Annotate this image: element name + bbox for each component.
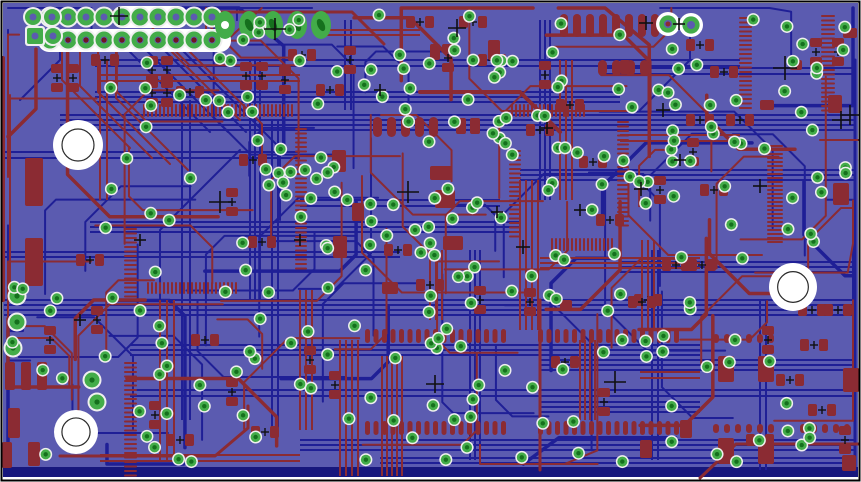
via-drill [621,158,625,162]
ic-pad [519,104,521,117]
ic-pad [124,443,137,445]
via-drill [406,119,410,123]
via [684,155,697,168]
ic-pad [599,238,601,251]
via-drill [786,429,790,433]
via-drill [757,438,761,442]
ic-pad [415,117,424,137]
via [586,203,599,216]
ic-pad [124,376,137,378]
ic-pad [295,259,307,261]
ic-pad [746,334,752,343]
via-drill [240,241,244,245]
ic-pad [124,371,137,373]
via [633,175,646,188]
via [672,62,685,75]
via-drill [426,225,430,229]
ic-pad [124,389,137,391]
via-drill [472,265,476,269]
ic-pad [295,232,307,234]
ic-pad [657,421,662,435]
via [39,448,52,461]
ic-pad [509,231,521,233]
via [6,336,19,349]
via-drill [669,147,673,151]
via [315,151,328,164]
ic-pad [124,398,137,400]
through-hole-pad [83,371,102,390]
ic-pad [509,209,521,211]
smd-pad [5,362,15,390]
smd-pad [842,455,856,471]
via-drill [620,459,624,463]
via [172,453,185,466]
smd-pad [556,99,565,111]
smd-pad [686,114,695,126]
via-drill [250,110,254,114]
via-drill [241,413,245,417]
via-drill [188,176,192,180]
ic-pad [821,29,835,31]
ic-pad [295,227,307,229]
ic-pad [713,424,719,433]
ic-pad [583,238,585,251]
via-drill [43,452,47,456]
via [427,399,440,412]
ic-pad [124,439,137,441]
ic-pad [295,137,307,139]
ic-pad [632,421,637,435]
via-drill [368,243,372,247]
ic-pad [399,421,404,435]
via-drill [264,167,268,171]
ic-pad [155,282,157,294]
via [404,82,417,95]
pad-hole [191,14,198,21]
smd-pad [686,39,695,51]
via [612,83,625,96]
ic-pad [767,209,783,211]
ic-pad [484,421,489,435]
smd-pad [344,46,356,55]
ic-pad [739,85,752,87]
ic-pad [124,416,137,418]
smd-pad [185,434,194,446]
ic-pad [767,197,783,199]
ic-pad [124,457,137,459]
ic-pad [283,104,285,117]
via-drill [369,396,373,400]
via [571,146,584,159]
via-drill [109,187,113,191]
smd-pad [598,388,610,397]
via [432,332,445,345]
ic-pad [275,104,277,117]
via [373,9,386,22]
via [321,242,334,255]
ic-pad [235,282,237,294]
ic-pad [821,33,835,35]
ic-pad [199,104,201,117]
via [409,223,422,236]
ic-pad [598,329,603,343]
ic-pad [640,421,645,435]
ic-pad [598,421,603,435]
via-drill [287,27,291,31]
via-drill [661,349,665,353]
smd-pad [226,188,238,197]
via [598,150,611,163]
ic-pad [211,104,213,117]
via-drill [543,114,547,118]
via [358,78,371,91]
ic-pad [187,104,189,117]
smd-pad [307,49,316,61]
via-drill [145,61,149,65]
ic-pad [617,139,629,141]
smd-pad [710,66,719,78]
smd-pad [406,16,415,28]
via [780,20,793,33]
via-drill [510,153,514,157]
smd-pad [688,259,697,271]
via [555,17,568,30]
ic-pad [821,56,835,58]
smd-pad [403,244,412,256]
smd-pad [647,296,656,308]
via-drill [575,150,579,154]
via [781,424,794,437]
smd-pad [248,236,257,248]
via-drill [618,32,622,36]
via-drill [727,360,731,364]
ic-pad [573,14,581,37]
ic-pad [291,104,293,117]
ic-pad [295,178,307,180]
ic-pad [617,126,629,128]
ic-pad [509,177,521,179]
via-drill [410,436,414,440]
ic-pad [821,47,835,49]
ic-pad [295,236,307,238]
ic-pad [509,236,521,238]
via-drill [309,386,313,390]
ic-pad [821,24,835,26]
ic-pad [167,282,169,294]
ic-pad [295,205,307,207]
smd-pad [76,254,85,266]
ic-pad [735,424,741,433]
via-drill [530,385,534,389]
ic-pad [295,268,307,270]
via-drill [284,193,288,197]
smd-pad [329,390,341,399]
via [423,305,436,318]
via-drill [189,459,193,463]
ic-pad [746,424,752,433]
via [690,58,703,71]
via [683,296,696,309]
via [730,455,743,468]
smd-pad [226,378,238,387]
via [556,363,569,376]
pad-hole [14,319,19,324]
ic-pad [575,238,577,251]
via-drill [628,175,632,179]
ic-pad [211,282,213,294]
via [414,246,427,259]
ic-pad [416,329,421,343]
ic-pad [175,282,177,294]
smd-pad [524,288,536,297]
via-drill [165,364,169,368]
smd-pad [478,16,487,28]
via-drill [510,59,514,63]
via-drill [467,14,471,18]
soldered-pin [137,37,142,42]
via [293,54,306,67]
via-drill [165,411,169,415]
ic-pad [767,201,783,203]
via [448,115,461,128]
via [249,431,262,444]
via [617,154,630,167]
via [311,97,324,110]
smd-pad [425,16,434,28]
smd-pad [25,238,43,286]
via-drill [352,324,356,328]
ic-pad [295,187,307,189]
ic-pad [124,394,137,396]
ic-pad [767,229,783,231]
smd-pad [149,401,161,410]
via-drill [601,350,605,354]
via-drill [495,58,499,62]
ic-pad [509,191,521,193]
via [567,415,580,428]
smd-pad [304,365,316,374]
smd-pad [640,440,652,458]
ic-pad [649,421,654,435]
via-drill [452,120,456,124]
via-drill [705,364,709,368]
via-drill [618,292,622,296]
via-drill [109,86,113,90]
via-drill [253,356,257,360]
via-drill [316,102,320,106]
via [439,453,452,466]
via-drill [345,198,349,202]
smd-pad [279,85,291,94]
via-drill [267,183,271,187]
via-drill [590,208,594,212]
via [462,93,475,106]
via-drill [722,184,726,188]
via [490,54,503,67]
via [465,296,478,309]
via-drill [401,66,405,70]
via [538,109,551,122]
through-hole-pad [42,7,62,27]
ic-pad [564,329,569,343]
ic-pad [739,71,752,73]
smd-pad [2,442,12,468]
via-drill [459,344,463,348]
ic-pad [767,185,783,187]
via-drill [281,180,285,184]
ic-pad [767,161,783,163]
pad-hole [49,14,56,21]
via [380,229,393,242]
via-drill [620,338,624,342]
smd-pad [435,279,444,291]
ic-pad [124,466,137,468]
via [397,62,410,75]
smd-pad [654,176,666,185]
ic-pad [493,329,498,343]
via-drill [612,252,616,256]
via-drill [688,159,692,163]
via-drill [255,138,259,142]
ic-pad [571,238,573,251]
via-drill [767,359,771,363]
via [597,346,610,359]
ic-pad [295,245,307,247]
ic-pad [501,421,506,435]
via [399,103,412,116]
ic-pad [183,282,185,294]
ic-pad [124,448,137,450]
via [468,261,481,274]
smd-pad [800,339,809,351]
via-drill [253,435,257,439]
via [193,379,206,392]
ic-pad [821,92,835,94]
via [251,134,264,147]
soldered-pin [65,37,70,42]
ic-pad [674,421,679,435]
via [364,238,377,251]
ic-pad [724,424,730,433]
via-drill [149,211,153,215]
via-drill [306,329,310,333]
via-drill [149,103,153,107]
ic-pad [295,133,307,135]
mounting-hole [54,410,98,454]
via [237,33,250,46]
ic-pad [617,144,629,146]
ic-pad [124,452,137,454]
ic-pad [767,189,783,191]
via-drill [256,30,260,34]
via-drill [670,159,674,163]
pad-hole [30,14,37,21]
via-drill [289,341,293,345]
via [185,455,198,468]
via [668,134,681,147]
via-drill [734,459,738,463]
via-drill [429,294,433,298]
ic-pad [606,329,611,343]
pad-hole [687,21,695,29]
via [144,207,157,220]
smd-pad [382,282,398,294]
via [120,152,133,165]
smd-pad [828,95,842,113]
via-drill [167,218,171,222]
via-drill [369,67,373,71]
smd-pad [51,83,63,92]
via-drill [492,75,496,79]
smd-pad [161,56,173,65]
ic-pin-row [739,17,752,109]
smd-pad [526,124,535,136]
via-drill [427,61,431,65]
via [219,285,232,298]
via-drill [362,83,366,87]
via-drill [666,90,670,94]
via [173,89,186,102]
ic-pad [159,282,161,294]
via-drill [427,310,431,314]
ic-pad [515,104,517,117]
via-drill [670,47,674,51]
via-drill [445,327,449,331]
via-drill [644,201,648,205]
via-drill [504,116,508,120]
ic-pad [555,421,560,435]
pcb-layout-screenshot [0,0,861,482]
via-drill [138,308,142,312]
via [310,172,323,185]
via [389,351,402,364]
via [446,212,459,225]
pcb-canvas[interactable] [0,0,861,482]
pad-hole [32,33,39,40]
via [515,451,528,464]
via [625,101,638,114]
ic-pad [207,282,209,294]
smd-pad [839,445,851,454]
via-drill [561,367,565,371]
via [803,431,816,444]
via-drill [807,436,811,440]
through-hole-pad [8,313,27,332]
ic-pad [373,117,382,137]
ic-pad [484,329,489,343]
via-drill [762,146,766,150]
ic-pad [433,421,438,435]
smd-pad [628,296,637,308]
via [559,141,572,154]
ic-pad [739,49,752,51]
via-drill [800,443,804,447]
via-drill [446,187,450,191]
via [546,46,559,59]
via [428,249,441,262]
via [488,71,501,84]
via-drill [429,341,433,345]
ic-pad [739,80,752,82]
smd-pad [808,404,817,416]
via-drill [177,93,181,97]
via [341,193,354,206]
via [422,135,435,148]
ic-pad [195,104,197,117]
ic-pad [183,104,185,117]
via-drill [55,296,59,300]
via [506,55,519,68]
